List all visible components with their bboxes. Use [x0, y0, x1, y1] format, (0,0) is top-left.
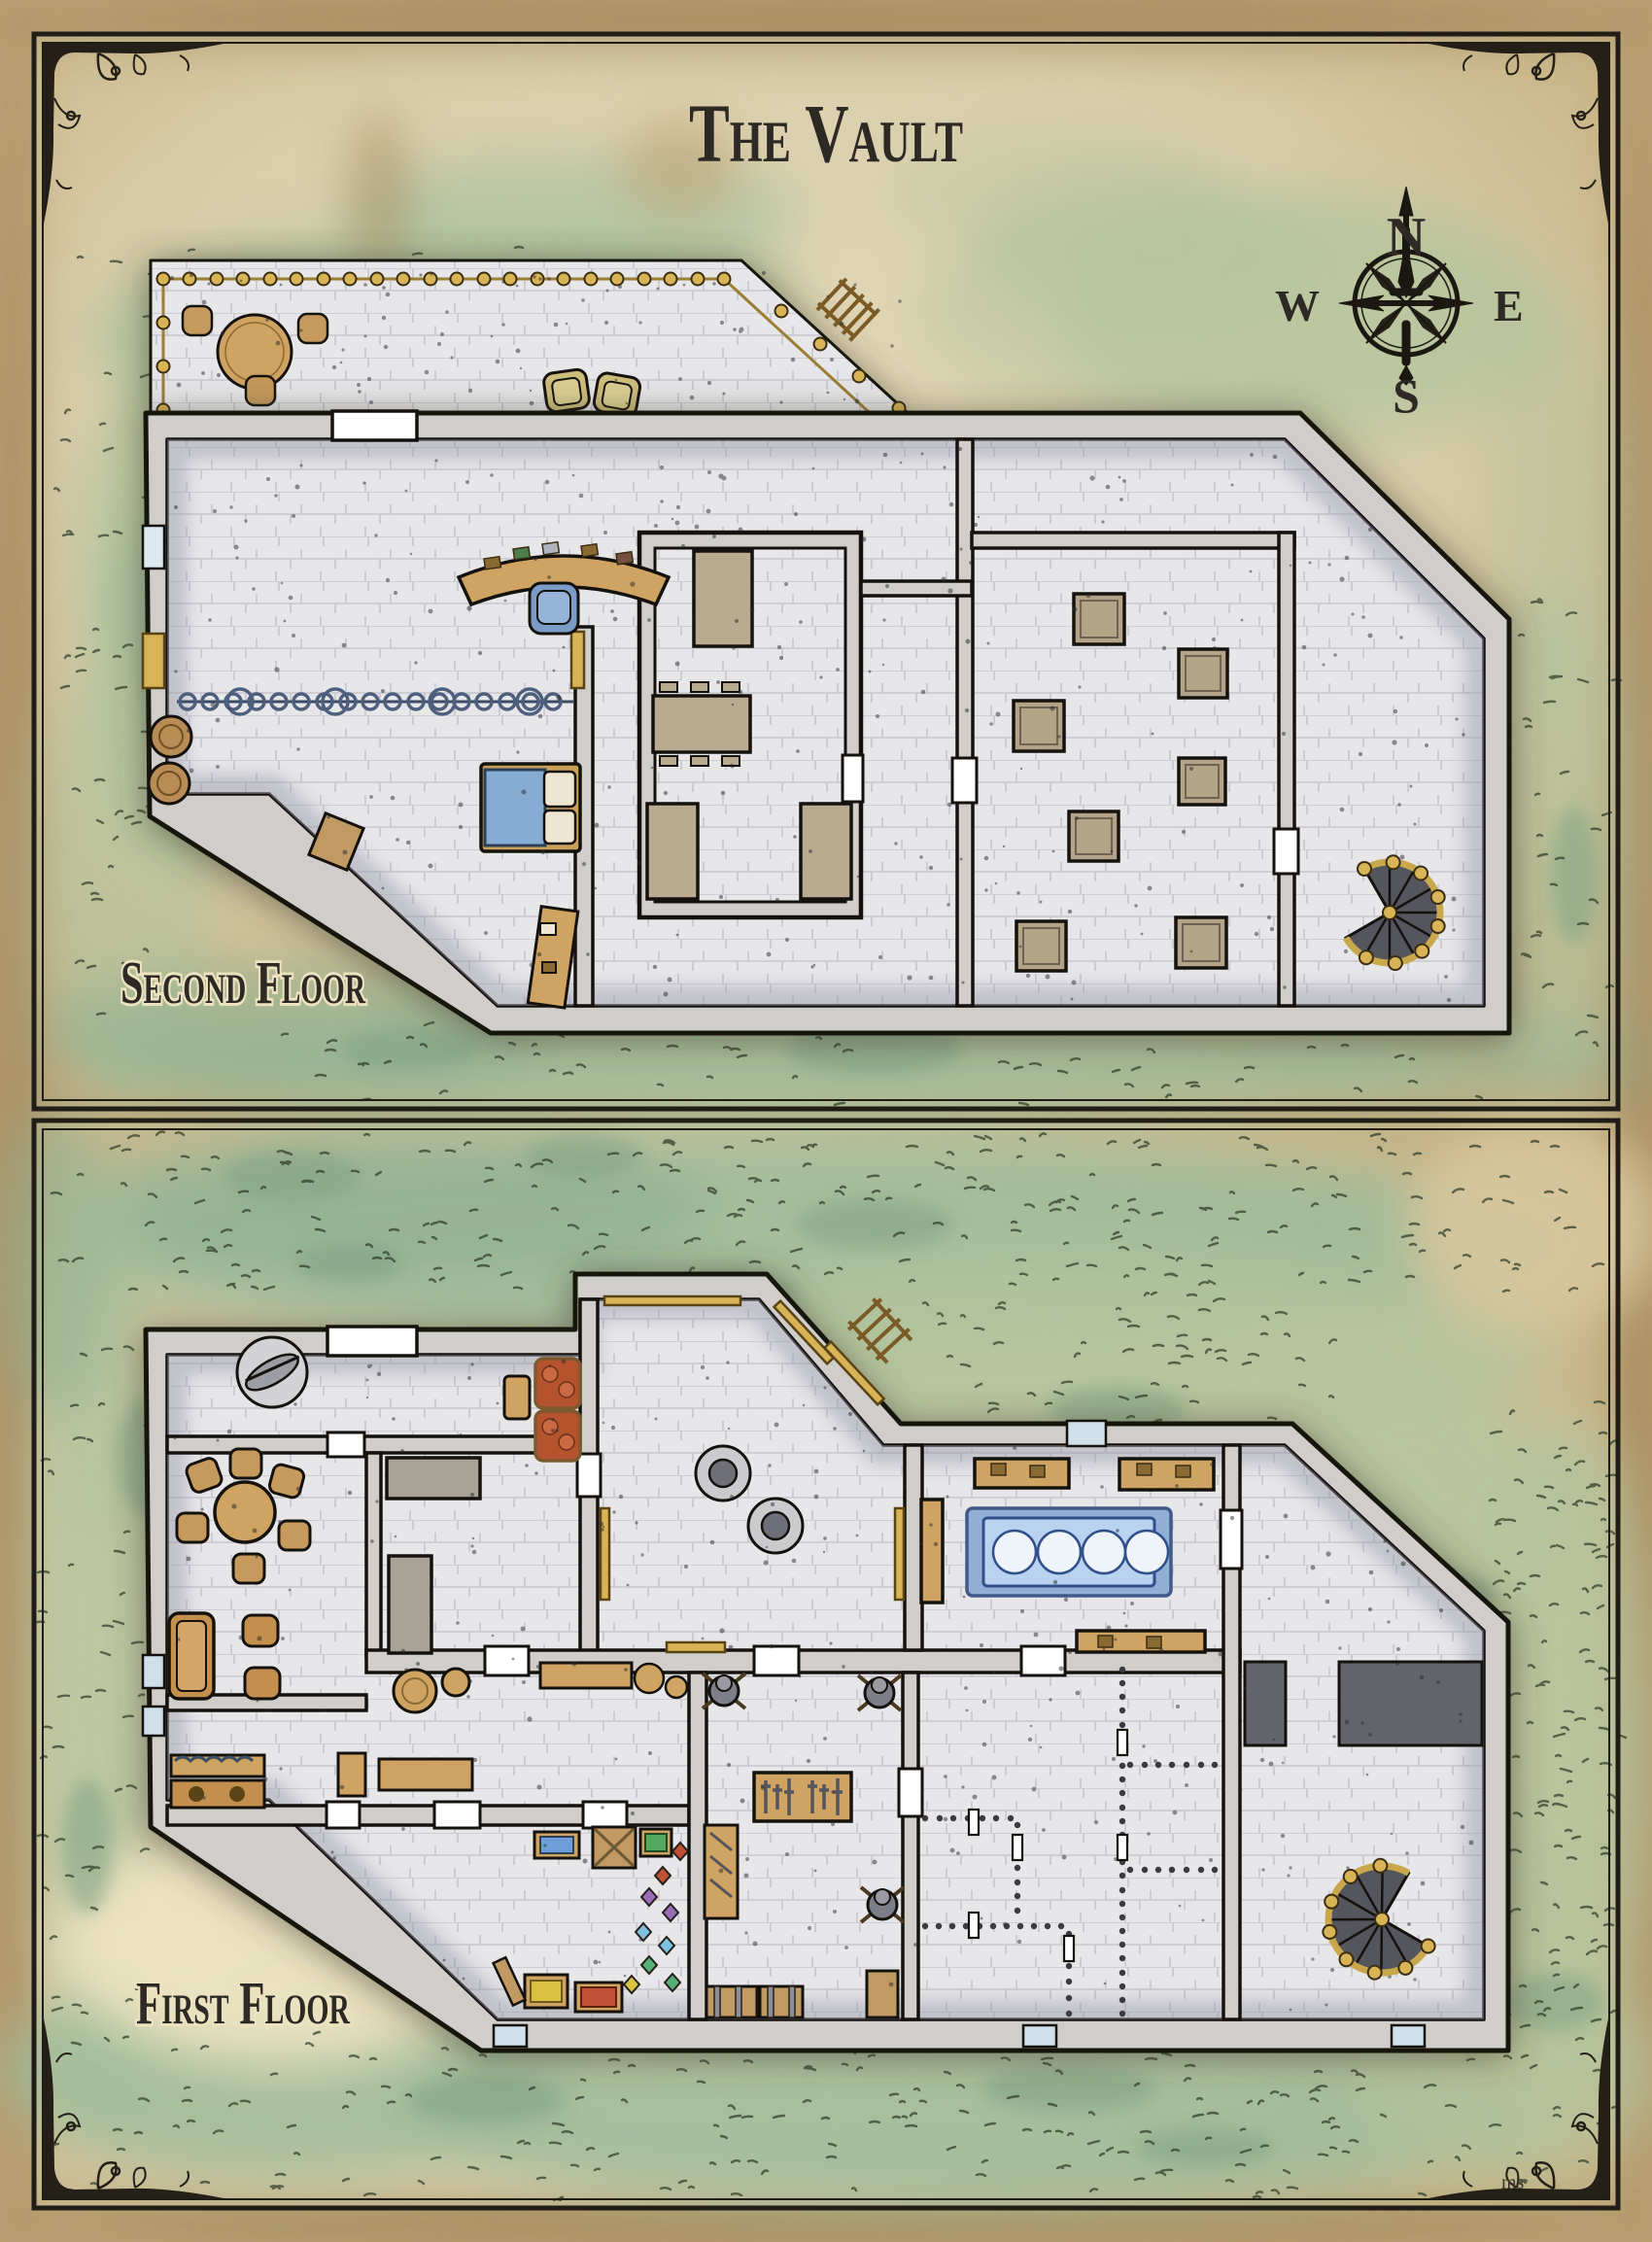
svg-text:S: S — [1393, 368, 1420, 423]
svg-text:First Floor: First Floor — [136, 1971, 351, 2037]
svg-text:E: E — [1494, 281, 1524, 330]
svg-text:The Vault: The Vault — [689, 86, 963, 180]
svg-text:Second Floor: Second Floor — [120, 950, 366, 1017]
svg-text:ms: ms — [1501, 2172, 1525, 2193]
svg-text:N: N — [1387, 207, 1426, 267]
svg-text:W: W — [1275, 281, 1320, 330]
